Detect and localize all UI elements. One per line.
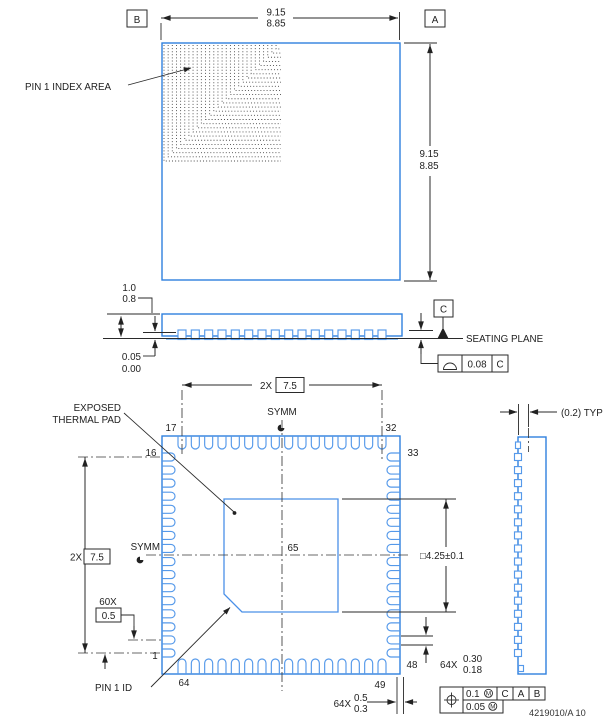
centerline-symbol-icon [137,557,144,564]
fcf-datum-b: B [534,689,541,700]
pin-49-label: 49 [375,680,386,691]
strip-lead [515,480,522,487]
exposed-pad-label-line2: THERMAL PAD [52,415,121,426]
height-min: 0.8 [122,294,136,305]
datum-a-label: A [432,15,439,26]
body-width-min: 8.85 [266,19,286,30]
strip-lead [515,597,522,604]
leader-dot [233,511,237,515]
pitch-value: 0.5 [102,611,116,622]
fcf-datum-c: C [501,689,508,700]
svg-text:M: M [490,704,495,711]
lead-length-max: 0.5 [354,693,368,704]
strip-lead [515,506,522,513]
strip-lead [515,532,522,539]
exposed-thermal-pad [224,499,338,612]
datum-b-label: B [134,15,141,26]
pitch-span: 7.5 [283,381,297,392]
leader-line [421,352,438,364]
datum-a: A [425,10,445,27]
package-drawing-page: PIN 1 INDEX AREA 9.15 8.85 B A [0,0,613,728]
lead-length-min: 0.3 [354,704,368,715]
strip-lead [515,545,522,552]
count-64x: 64X [440,660,458,671]
body-height-max: 9.15 [419,149,439,160]
typ-offset-label: (0.2) TYP [561,408,603,419]
count-64x: 64X [334,699,352,710]
strip-lead [515,493,522,500]
lead-width-min: 0.18 [463,665,483,676]
bottom-view: SYMM SYMM 2X 7.5 2X 7.5 [52,378,545,716]
pin-64-label: 64 [179,678,190,689]
dim-package-height: 1.0 0.8 [107,283,160,337]
symm-left: SYMM [131,542,160,563]
standoff-max: 0.05 [122,352,142,363]
strip-lead [515,519,522,526]
datum-triangle-icon [438,328,449,339]
strip-lead [515,623,522,630]
fcf-datum-a: A [518,689,525,700]
strip-top-lead [516,442,521,449]
dim-body-height: 9.15 8.85 [404,43,439,281]
side-view: 1.0 0.8 0.05 0.00 C SEATING PLANE [103,283,544,375]
leader-line [138,298,152,313]
lead-width-max: 0.30 [463,654,483,665]
standoff-min: 0.00 [122,364,142,375]
symm-label: SYMM [131,542,160,553]
seating-plane-label: SEATING PLANE [466,334,544,345]
body-height-min: 8.85 [419,161,439,172]
leader-line [121,615,134,626]
centerline-symbol-icon [278,425,285,432]
svg-text:M: M [486,691,491,698]
strip-lead [515,636,522,643]
pin-48-label: 48 [407,660,418,671]
strip-lead [515,584,522,591]
pitch-span: 7.5 [90,553,104,564]
document-number: 4219010/A 10 [529,708,586,718]
datum-c-label: C [440,305,447,316]
pin-33-label: 33 [408,448,419,459]
top-view: PIN 1 INDEX AREA 9.15 8.85 B A [25,8,445,282]
datum-b: B [127,10,147,27]
pin1-id-label: PIN 1 ID [95,683,132,694]
body-width-max: 9.15 [266,8,286,19]
top-view-body-outline [162,43,400,280]
position-tolerance2: 0.05 [466,702,486,713]
strip-lead [515,558,522,565]
pin1-index-area-label: PIN 1 INDEX AREA [25,82,111,93]
strip-lead [515,610,522,617]
count-2x: 2X [70,553,82,564]
strip-body-outline [518,437,546,674]
height-max: 1.0 [122,283,136,294]
strip-lead [515,650,522,657]
pad-size-value: □4.25±0.1 [420,551,464,562]
exposed-pad-label-line1: EXPOSED [74,403,121,414]
symm-label: SYMM [267,407,296,418]
pin-32-label: 32 [386,423,397,434]
position-tolerance: 0.1 [466,689,480,700]
flatness-tolerance: 0.08 [467,360,487,371]
pin-1-label: 1 [152,651,157,662]
strip-lead [515,467,522,474]
count-60x: 60X [99,597,117,608]
strip-lead [515,454,522,461]
datum-c: C [434,300,453,339]
pin-17-label: 17 [166,423,177,434]
count-2x: 2X [260,381,272,392]
pin-16-label: 16 [146,448,157,459]
side-strip-view: (0.2) TYP [500,404,603,674]
pin-65-label: 65 [288,543,299,554]
dim-body-width: 9.15 8.85 [161,8,400,41]
strip-lead [515,571,522,578]
flatness-datum: C [496,360,503,371]
